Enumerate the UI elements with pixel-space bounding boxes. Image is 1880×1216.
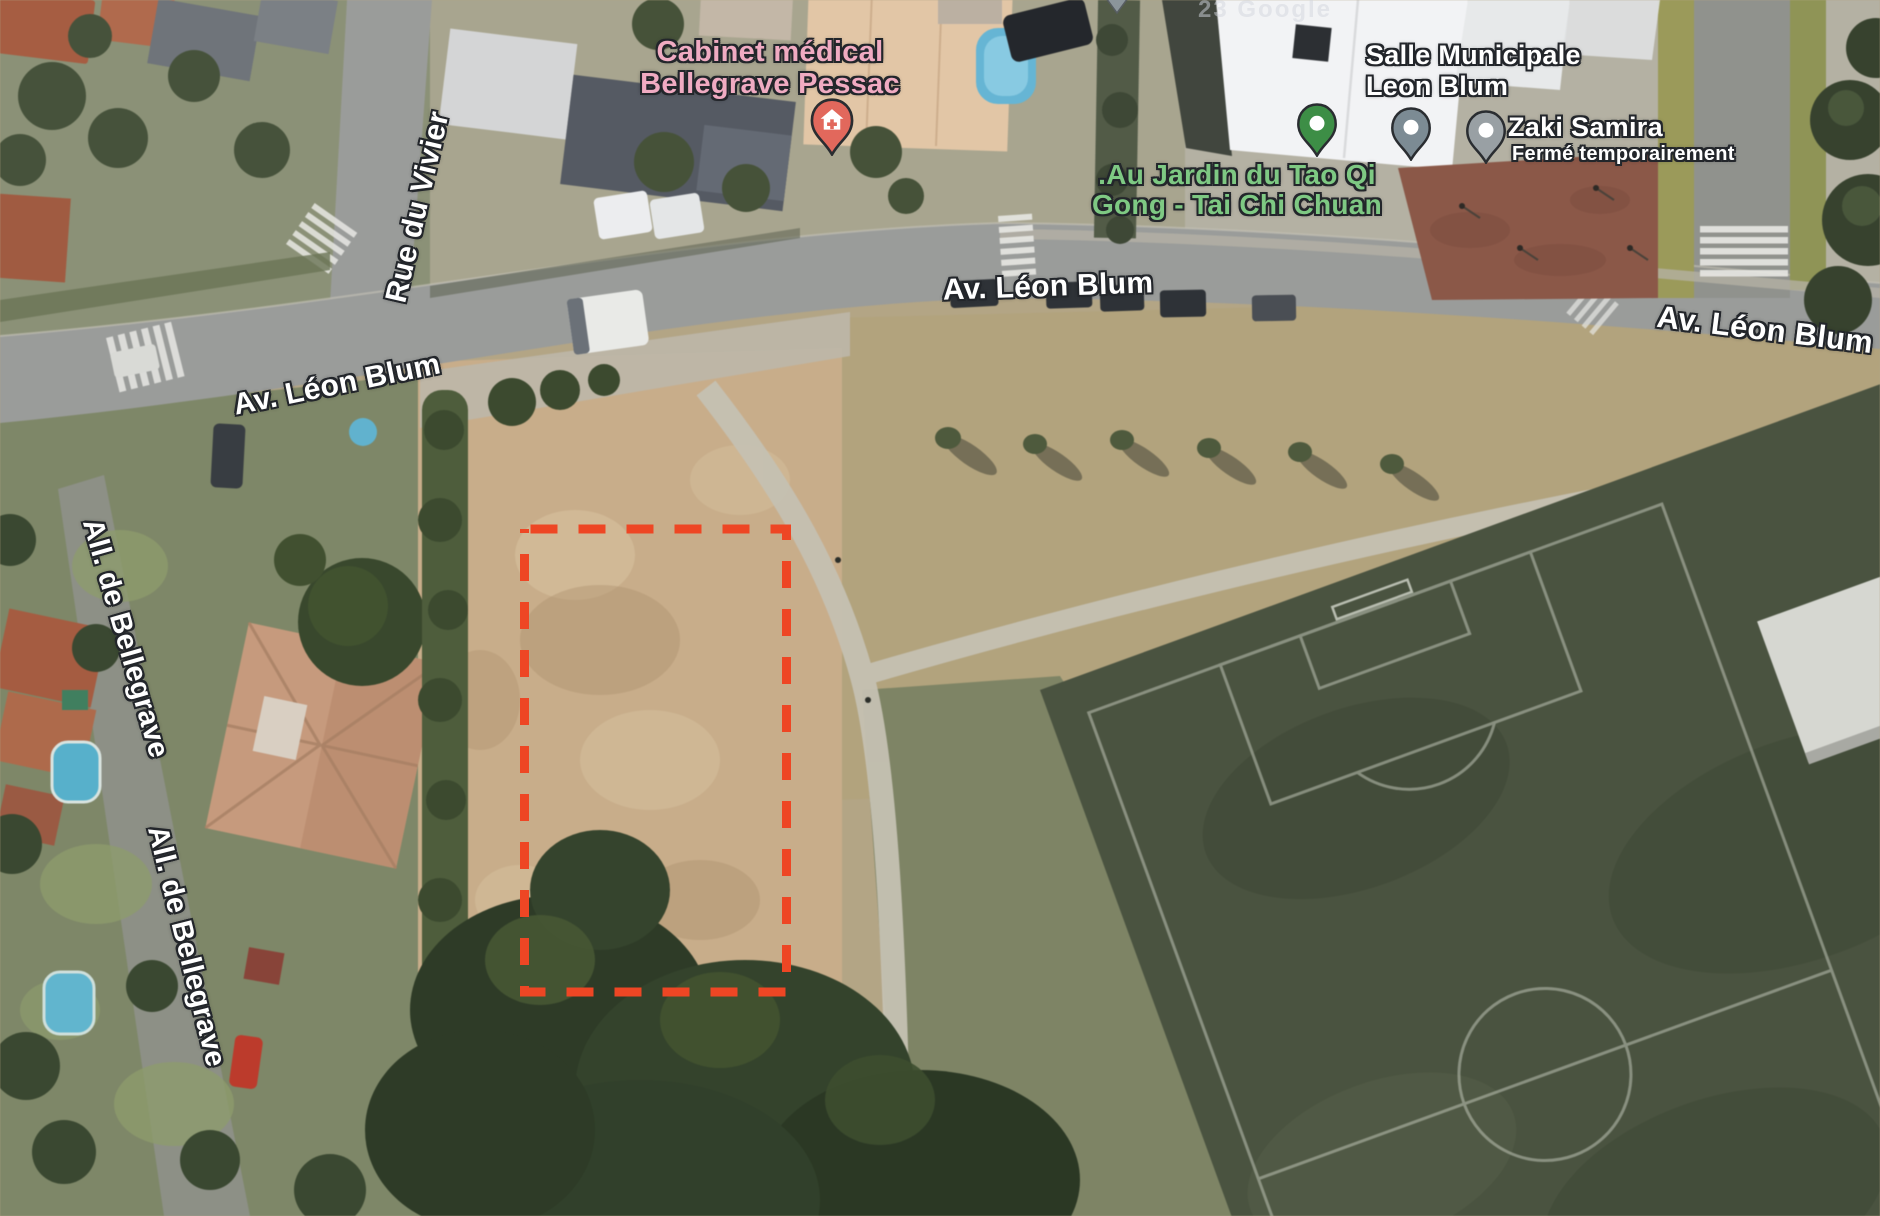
poi-label-salle-municipale[interactable]: Salle Municipale Leon Blum — [1366, 40, 1598, 102]
zaki-samira-pin[interactable] — [1465, 110, 1507, 169]
map-attribution-partial: 23 Google — [1198, 0, 1332, 24]
gray-dot-pin-icon — [1390, 107, 1432, 161]
poi-label-zaki-samira[interactable]: Zaki Samira — [1508, 112, 1663, 143]
offscreen-pin-tip — [1102, 0, 1132, 19]
gray-dot-pin-icon — [1465, 110, 1507, 164]
satellite-map[interactable]: Cabinet médical Bellegrave Pessac .Au Ja… — [0, 0, 1880, 1216]
red-dashed-rectangle — [0, 0, 1880, 1216]
cabinet-medical-pin[interactable] — [809, 98, 855, 161]
salle-municipale-pin[interactable] — [1390, 107, 1432, 166]
poi-status-zaki-samira: Fermé temporairement — [1512, 143, 1735, 166]
jardin-tao-pin[interactable] — [1296, 103, 1338, 162]
medical-house-pin-icon — [809, 98, 855, 156]
poi-label-jardin-tao[interactable]: .Au Jardin du Tao Qi Gong - Tai Chi Chua… — [1081, 160, 1393, 220]
poi-label-cabinet-medical[interactable]: Cabinet médical Bellegrave Pessac — [600, 36, 940, 100]
green-dot-pin-icon — [1296, 103, 1338, 157]
pin-tip-icon — [1102, 0, 1132, 14]
